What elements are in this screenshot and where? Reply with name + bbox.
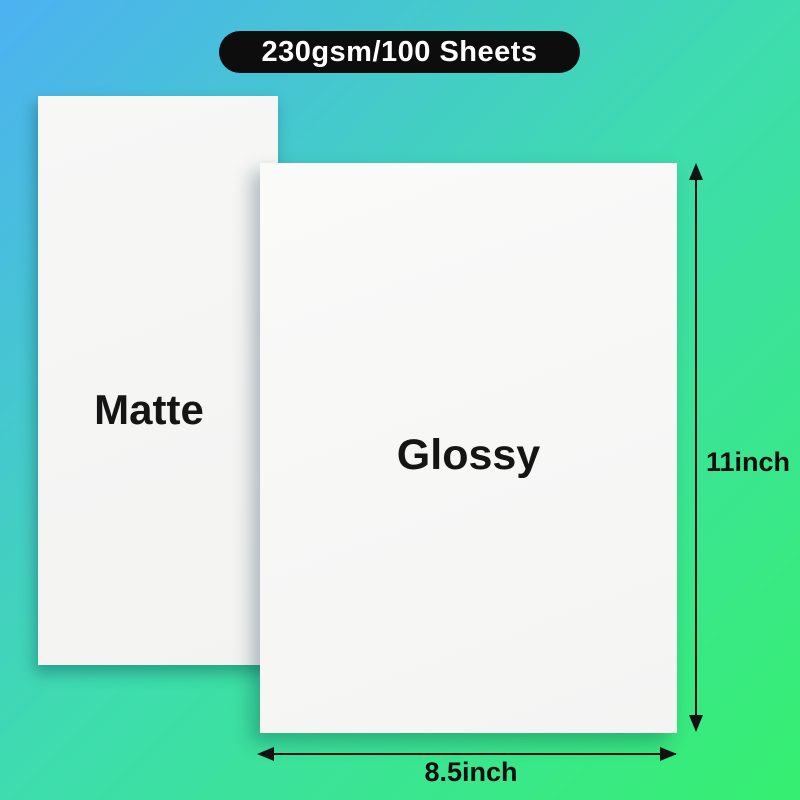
height-dimension-label: 11inch <box>706 447 790 478</box>
height-dimension-line <box>695 166 697 730</box>
weight-badge: 230gsm/100 Sheets <box>219 31 580 73</box>
arrow-right-icon <box>660 747 677 761</box>
arrow-down-icon <box>689 715 703 732</box>
width-dimension-line <box>260 753 676 755</box>
arrow-left-icon <box>257 747 274 761</box>
product-image: 230gsm/100 Sheets Matte Glossy 11inch 8.… <box>0 0 800 800</box>
matte-paper-sheet <box>38 96 278 665</box>
matte-label: Matte <box>38 386 260 434</box>
arrow-up-icon <box>689 163 703 180</box>
weight-badge-label: 230gsm/100 Sheets <box>261 36 537 69</box>
glossy-label: Glossy <box>260 431 677 480</box>
width-dimension-label: 8.5inch <box>391 757 551 788</box>
